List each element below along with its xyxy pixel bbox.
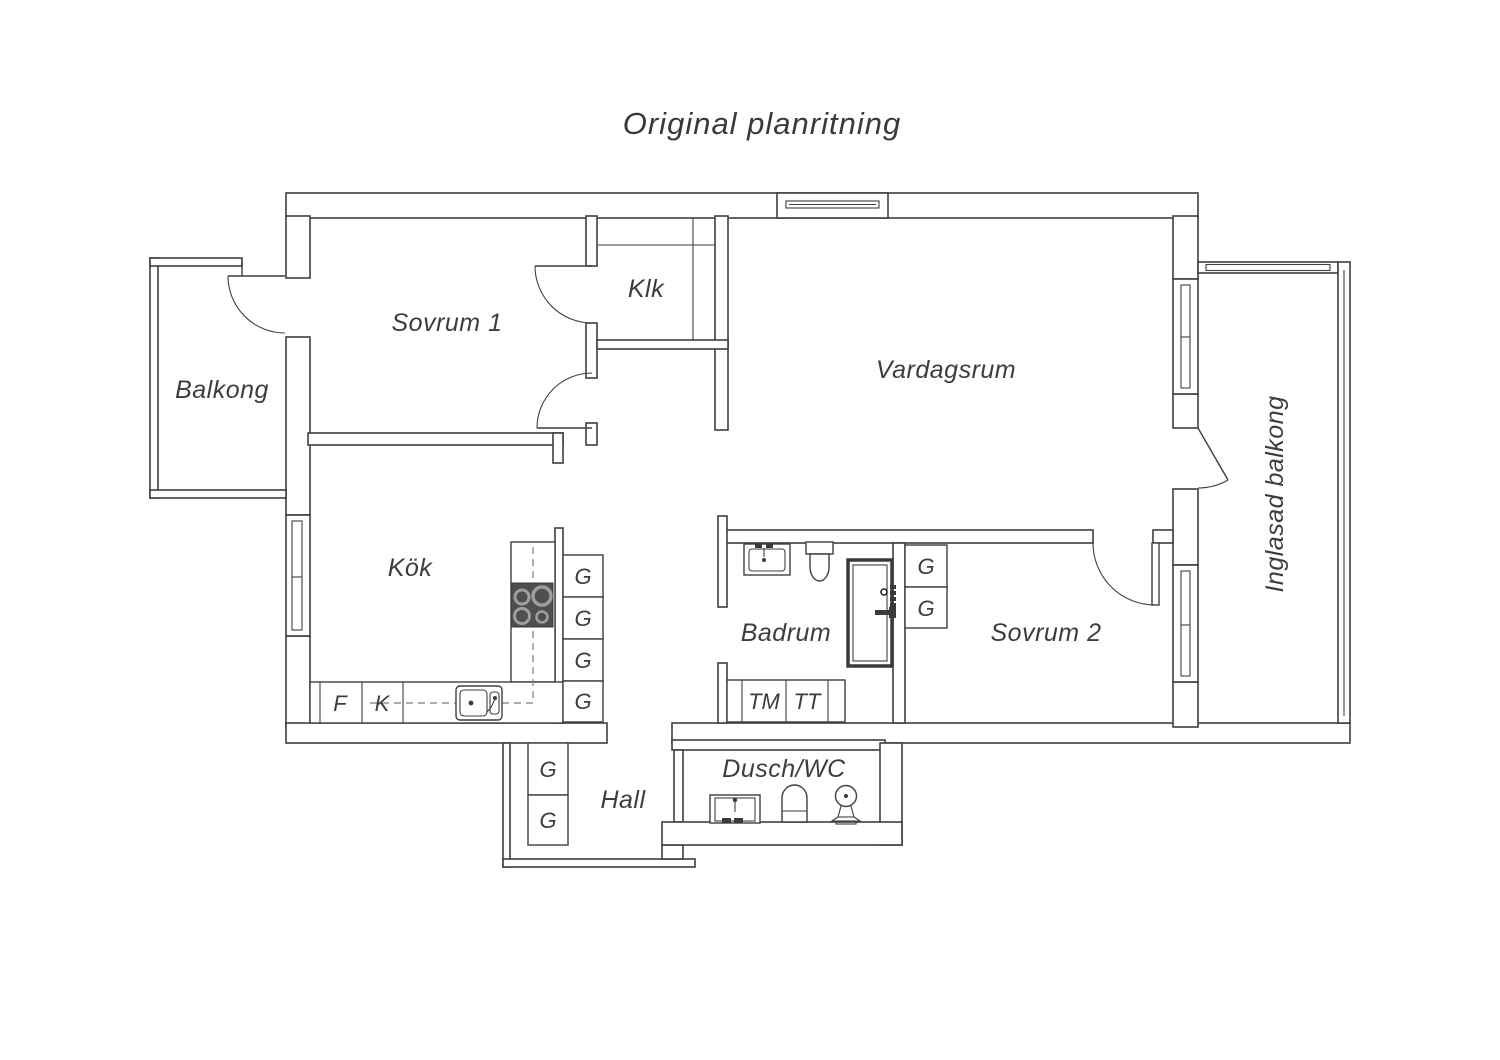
glazing-band (1198, 262, 1338, 273)
basin-pedestal (832, 806, 860, 821)
room-label-vardagsrum: Vardagsrum (876, 356, 1016, 384)
cabinet-label-g: G (917, 554, 934, 579)
door-swing-arc (537, 373, 592, 428)
wall-segment (586, 323, 597, 378)
wall-segment (553, 433, 563, 463)
cabinet-label-g: G (574, 606, 591, 631)
wall-segment (503, 859, 695, 867)
cabinet-label-g: G (574, 689, 591, 714)
door (1198, 428, 1228, 488)
burner-icon (537, 612, 548, 623)
appliance-label-tm: TM (748, 689, 780, 714)
balcony-railing (150, 490, 286, 498)
wall-segment (308, 433, 563, 445)
appliance-label-tt: TT (794, 689, 822, 714)
room-label-klk: Klk (628, 275, 665, 303)
balcony-railing (150, 258, 242, 266)
floor-plan: Original planritning Balkong Sovrum 1 Kl… (0, 0, 1500, 1060)
door (535, 266, 592, 323)
door-handle-mount (889, 607, 896, 618)
room-label-sovrum1: Sovrum 1 (392, 309, 503, 337)
bathroom-sink (744, 543, 790, 575)
room-label-kok: Kök (388, 554, 434, 582)
pedestal-washbasin (832, 786, 860, 825)
door (1093, 543, 1159, 605)
shower (710, 795, 760, 823)
hinge-icon (890, 585, 896, 589)
sink-outline (456, 686, 502, 720)
toilet-bowl (810, 554, 829, 581)
cabinet-label-g: G (539, 808, 556, 833)
burner-icon (515, 609, 530, 624)
tap-icon (766, 543, 773, 548)
wall-segment (1173, 394, 1198, 428)
door-swing-arc (535, 266, 592, 323)
entry-step (662, 845, 683, 859)
door-swing-arc (228, 276, 285, 333)
hinge-icon (890, 603, 896, 607)
cabinet-label-g: G (574, 564, 591, 589)
wall-segment (674, 750, 683, 822)
stove (511, 583, 553, 627)
shower-control-icon (722, 818, 731, 823)
toilet-bowl (782, 785, 807, 822)
door-leaf (1198, 428, 1228, 480)
room-label-sovrum2: Sovrum 2 (991, 619, 1102, 647)
drain-icon (844, 794, 848, 798)
cabinet-label-g: G (574, 648, 591, 673)
page-title: Original planritning (623, 106, 901, 141)
wall-segment (718, 663, 727, 723)
wall-segment (286, 636, 310, 728)
window (1173, 279, 1198, 394)
door (537, 373, 592, 428)
door (228, 276, 285, 333)
hinge-icon (890, 597, 896, 601)
wall-segment (662, 822, 902, 845)
door-swing-arc (1198, 480, 1228, 488)
wall-segment (725, 530, 1093, 543)
toilet-tank (806, 542, 833, 554)
entrance-door-panel (848, 560, 896, 666)
room-label-balkong: Balkong (175, 376, 269, 404)
toilet (806, 542, 833, 581)
shower-room-fixtures (710, 785, 860, 824)
room-label-inglasad-balkong: Inglasad balkong (1261, 395, 1289, 592)
faucet-icon (493, 696, 497, 700)
faucet-icon (733, 798, 737, 802)
appliance-label-f: F (333, 691, 348, 716)
hinge-icon (890, 591, 896, 595)
door-swing-arc (1093, 543, 1155, 605)
window (286, 515, 310, 636)
wall-segment (1173, 216, 1198, 279)
floor-plan-page: Original planritning Balkong Sovrum 1 Kl… (0, 0, 1500, 1060)
wall-segment (1153, 530, 1173, 543)
window (777, 193, 888, 218)
wall-segment (286, 723, 607, 743)
door-leaf (1152, 543, 1159, 605)
wall-segment (286, 193, 1198, 218)
room-label-dusch-wc: Dusch/WC (722, 755, 846, 783)
wall-segment (586, 423, 597, 445)
drain-icon (762, 558, 766, 562)
drain-icon (469, 701, 474, 706)
room-label-hall: Hall (600, 786, 646, 814)
wall-segment (718, 516, 727, 607)
wall-segment (597, 340, 728, 349)
kitchen-fixtures (310, 542, 563, 723)
wall-segment (286, 216, 310, 278)
wall-segment (1173, 682, 1198, 727)
tap-icon (755, 543, 762, 548)
cabinet-label-g: G (539, 757, 556, 782)
room-label-badrum: Badrum (741, 619, 832, 647)
wall-segment (893, 543, 905, 723)
cabinet-label-g: G (917, 596, 934, 621)
wall-segment (503, 743, 510, 867)
window (1173, 565, 1198, 682)
burner-icon (533, 587, 551, 605)
balcony-railing (150, 258, 158, 498)
wall-segment (715, 216, 728, 430)
kitchen-sink (456, 686, 502, 720)
burner-icon (515, 590, 529, 604)
bathroom-fixtures (744, 542, 833, 581)
wall-segment (586, 216, 597, 266)
wall-segment (1173, 489, 1198, 565)
toilet (782, 785, 807, 822)
shower-control-icon (734, 818, 743, 823)
wall-segment (672, 740, 885, 750)
appliance-label-k: K (375, 691, 391, 716)
wall-segment (286, 337, 310, 515)
